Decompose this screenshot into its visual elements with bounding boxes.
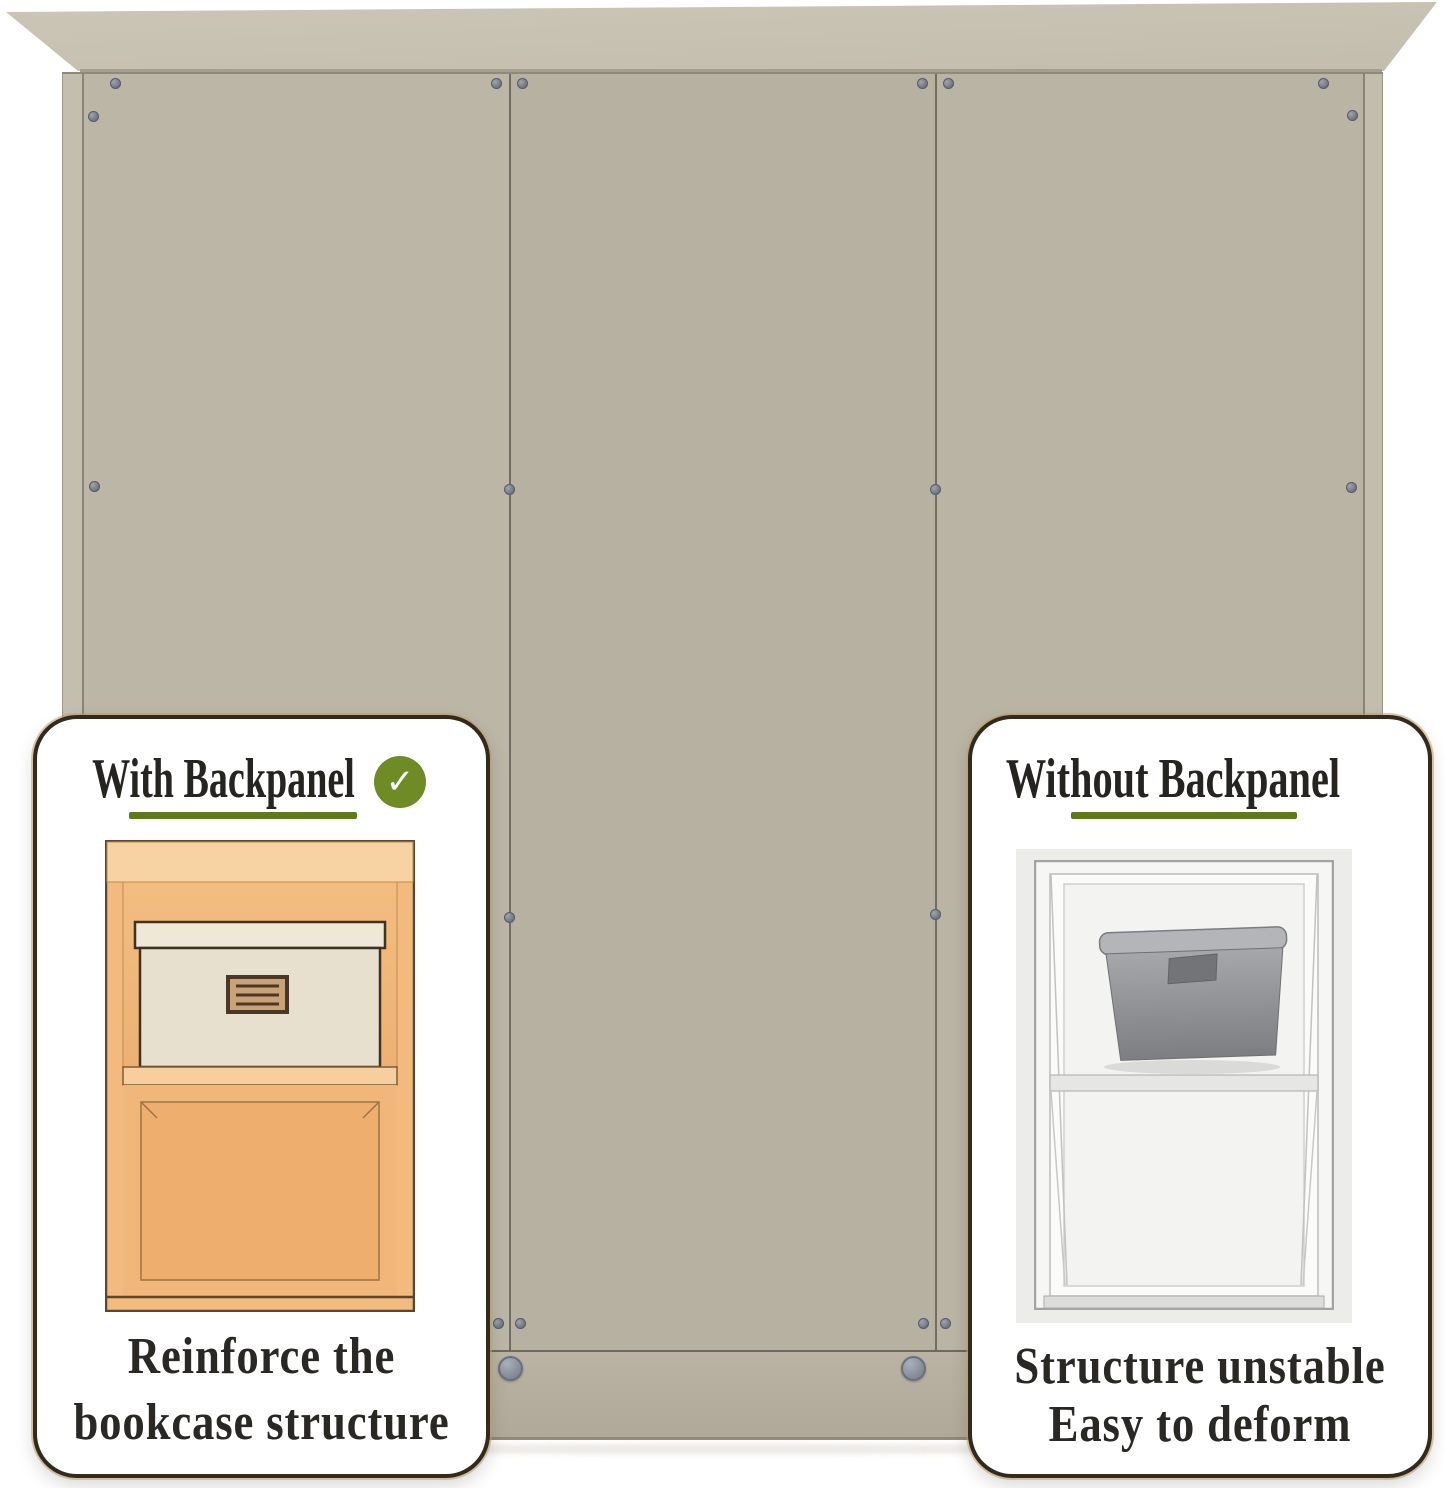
crown-molding (0, 0, 1445, 72)
screw-icon (943, 78, 954, 89)
title-underline (129, 812, 357, 819)
without-backpanel-title: Without Backpanel (1006, 749, 1334, 809)
with-caption-line1: Reinforce the (68, 1327, 454, 1386)
screw-icon (515, 1318, 526, 1329)
screw-icon (493, 1318, 504, 1329)
screw-icon (88, 111, 99, 122)
check-circle-icon: ✓ (374, 756, 426, 808)
lower-cubby (123, 1085, 397, 1297)
screw-icon (517, 78, 528, 89)
shelf (1050, 1075, 1318, 1091)
without-caption-line1: Structure unstable (1004, 1337, 1396, 1396)
checkmark-icon: ✓ (386, 765, 415, 799)
screw-icon (930, 484, 941, 495)
with-caption-line2: bookcase structure (68, 1393, 454, 1452)
screw-icon (1346, 482, 1357, 493)
with-backpanel-title: With Backpanel (71, 749, 376, 809)
without-backpanel-card: Without Backpanel St (968, 715, 1432, 1478)
screw-icon (504, 912, 515, 923)
back-panel-center (509, 74, 935, 1350)
without-backpanel-illustration (1034, 860, 1334, 1310)
screw-icon (1318, 78, 1329, 89)
without-caption-line2: Easy to deform (1004, 1395, 1396, 1454)
screw-icon (1347, 110, 1358, 121)
storage-box-icon (135, 922, 385, 1067)
product-image: With Backpanel ✓ (0, 0, 1445, 1488)
screw-icon (917, 78, 928, 89)
shelf (123, 1067, 397, 1085)
with-backpanel-illustration (105, 840, 415, 1312)
screw-icon (89, 481, 100, 492)
large-screw-icon (901, 1356, 926, 1381)
screw-icon (918, 1318, 929, 1329)
title-underline (1071, 812, 1297, 819)
screw-icon (504, 484, 515, 495)
screw-icon (110, 78, 121, 89)
screw-icon (940, 1318, 951, 1329)
large-screw-icon (498, 1356, 523, 1381)
with-backpanel-card: With Backpanel ✓ (33, 715, 490, 1478)
screw-icon (930, 909, 941, 920)
screw-icon (491, 78, 502, 89)
gray-box-icon (1099, 927, 1290, 1061)
